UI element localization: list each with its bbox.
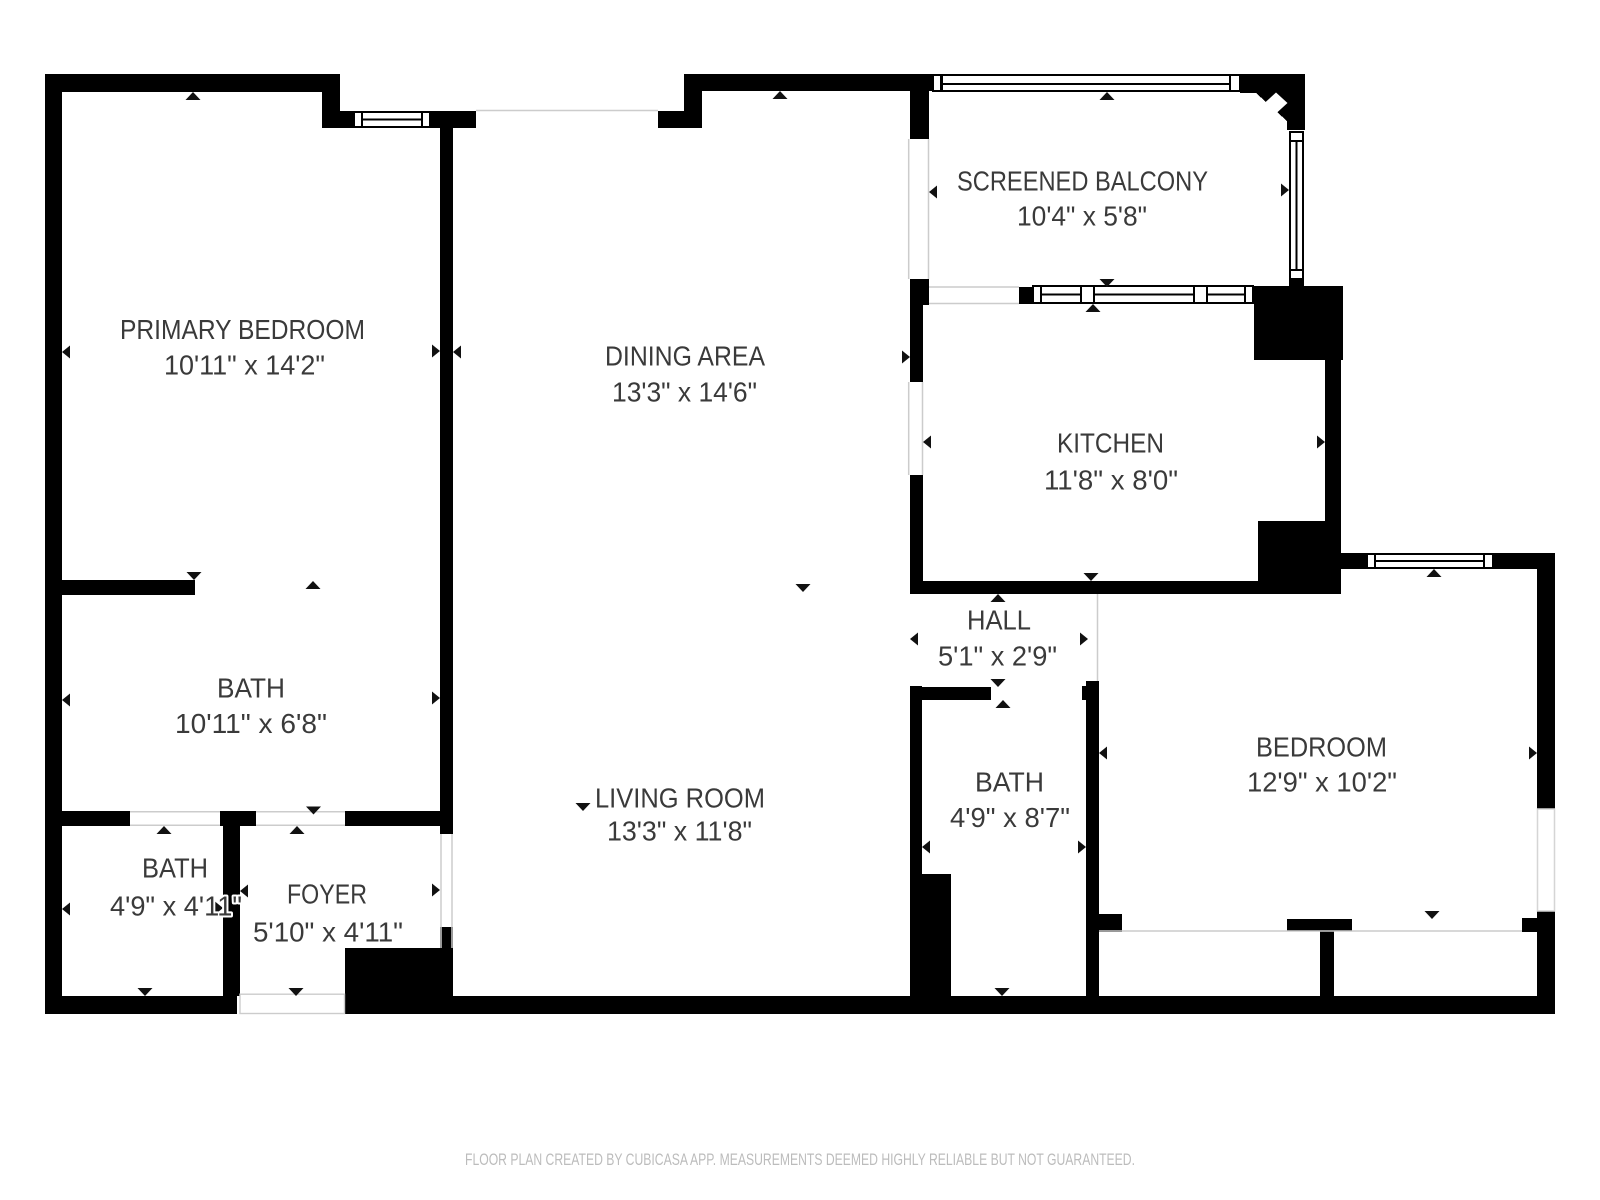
svg-text:12'9" x 10'2": 12'9" x 10'2" bbox=[1247, 767, 1397, 798]
svg-text:4'9" x 8'7": 4'9" x 8'7" bbox=[950, 802, 1070, 833]
svg-text:FLOOR PLAN CREATED BY CUBICASA: FLOOR PLAN CREATED BY CUBICASA APP. MEAS… bbox=[465, 1150, 1135, 1169]
svg-text:13'3" x 11'8": 13'3" x 11'8" bbox=[607, 816, 752, 847]
svg-text:FOYER: FOYER bbox=[287, 879, 367, 910]
svg-text:11'8" x 8'0": 11'8" x 8'0" bbox=[1044, 465, 1178, 496]
svg-text:10'11" x 6'8": 10'11" x 6'8" bbox=[175, 708, 327, 739]
svg-text:5'1" x 2'9": 5'1" x 2'9" bbox=[938, 641, 1057, 672]
svg-text:5'10" x 4'11": 5'10" x 4'11" bbox=[253, 917, 403, 948]
svg-text:10'11" x 14'2": 10'11" x 14'2" bbox=[164, 350, 325, 381]
svg-text:BEDROOM: BEDROOM bbox=[1256, 732, 1387, 763]
svg-text:BATH: BATH bbox=[142, 853, 208, 884]
svg-text:PRIMARY BEDROOM: PRIMARY BEDROOM bbox=[120, 314, 365, 345]
svg-text:13'3" x 14'6": 13'3" x 14'6" bbox=[612, 377, 757, 408]
svg-text:HALL: HALL bbox=[967, 605, 1031, 636]
svg-text:BATH: BATH bbox=[217, 673, 285, 704]
svg-text:10'4" x 5'8": 10'4" x 5'8" bbox=[1017, 201, 1147, 232]
svg-text:LIVING ROOM: LIVING ROOM bbox=[595, 783, 765, 814]
svg-text:SCREENED BALCONY: SCREENED BALCONY bbox=[957, 166, 1208, 197]
svg-text:4'9" x 4'11": 4'9" x 4'11" bbox=[110, 891, 242, 922]
svg-text:DINING AREA: DINING AREA bbox=[605, 341, 765, 372]
svg-text:BATH: BATH bbox=[975, 767, 1044, 798]
svg-text:KITCHEN: KITCHEN bbox=[1057, 428, 1164, 459]
